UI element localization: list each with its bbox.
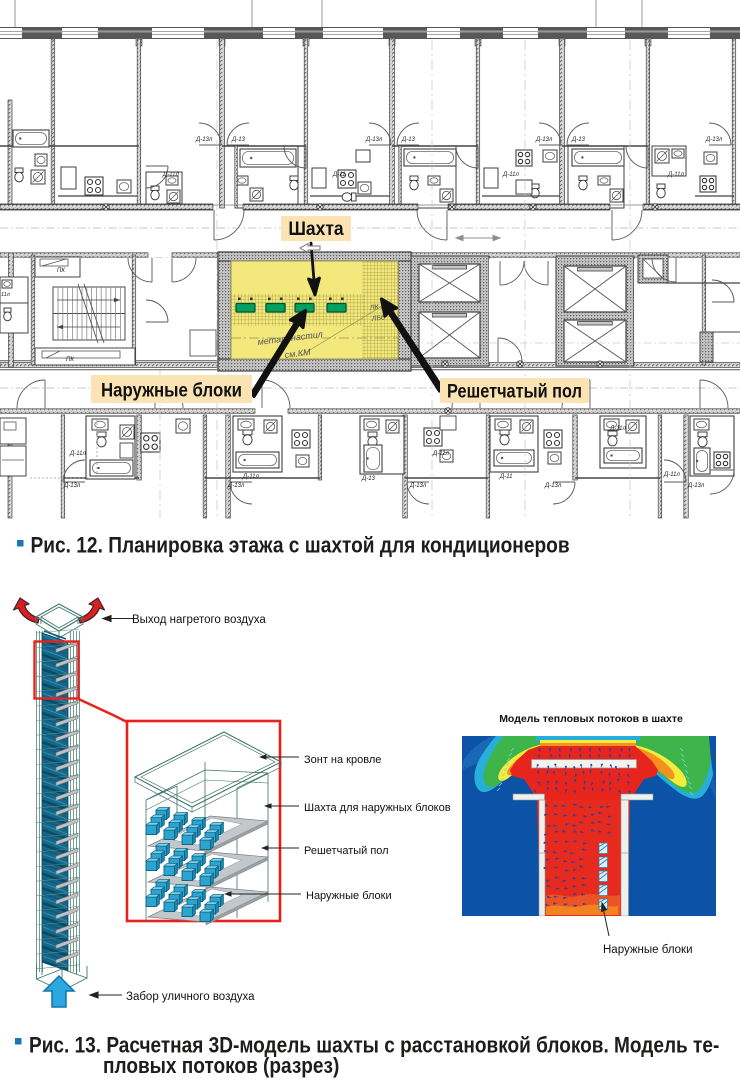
svg-text:Д-13л: Д-13л: [687, 483, 705, 489]
svg-text:Д-13: Д-13: [571, 137, 586, 143]
svg-text:Шахта: Шахта: [288, 217, 344, 239]
svg-text:Д-13л: Д-13л: [544, 483, 562, 489]
svg-text:Д-13л: Д-13л: [409, 483, 427, 489]
svg-text:Зонт на кровле: Зонт на кровле: [304, 754, 381, 766]
svg-text:ПК: ПК: [57, 268, 65, 274]
svg-text:Д-11л: Д-11л: [69, 451, 86, 457]
svg-text:Модель тепловых потоков в шахт: Модель тепловых потоков в шахте: [499, 713, 683, 725]
svg-text:Д-13: Д-13: [361, 476, 376, 482]
svg-text:Д-11л: Д-11л: [432, 451, 449, 457]
svg-text:Д-11л: Д-11л: [162, 172, 179, 178]
svg-text:Забор уличного воздуха: Забор уличного воздуха: [126, 991, 255, 1003]
svg-text:Д-13л: Д-13л: [63, 483, 81, 489]
svg-text:Д-11л: Д-11л: [242, 474, 259, 480]
svg-text:Наружные блоки: Наружные блоки: [306, 890, 392, 902]
svg-text:Выход нагретого воздуха: Выход нагретого воздуха: [132, 614, 266, 626]
svg-text:Д-11л: Д-11л: [663, 472, 680, 478]
svg-text:Наружные блоки: Наружные блоки: [603, 944, 693, 956]
svg-text:Решетчатый пол: Решетчатый пол: [447, 380, 582, 401]
svg-text:Д-11л: Д-11л: [667, 172, 684, 178]
svg-text:ПК: ПК: [66, 357, 74, 363]
svg-text:Д-11: Д-11: [332, 172, 345, 178]
svg-text:11л: 11л: [1, 292, 10, 298]
svg-text:Д-13л: Д-13л: [195, 137, 213, 143]
svg-text:Д-13л: Д-13л: [365, 137, 383, 143]
svg-text:пловых потоков (разрез): пловых потоков (разрез): [103, 1054, 339, 1079]
svg-text:Решетчатый пол: Решетчатый пол: [304, 845, 389, 857]
svg-text:Д-11: Д-11: [499, 474, 512, 480]
svg-text:Д-13л: Д-13л: [705, 137, 723, 143]
svg-text:Д-11л: Д-11л: [502, 172, 519, 178]
svg-text:Д-11л: Д-11л: [609, 426, 626, 432]
svg-text:Д-13л: Д-13л: [535, 137, 553, 143]
svg-text:Д-13: Д-13: [231, 137, 246, 143]
svg-text:Д-13: Д-13: [401, 137, 416, 143]
svg-text:Рис. 12. Планировка этажа с ша: Рис. 12. Планировка этажа с шахтой для к…: [31, 533, 570, 558]
svg-text:Наружные блоки: Наружные блоки: [101, 380, 242, 401]
svg-text:Шахта для наружных блоков: Шахта для наружных блоков: [304, 802, 451, 814]
